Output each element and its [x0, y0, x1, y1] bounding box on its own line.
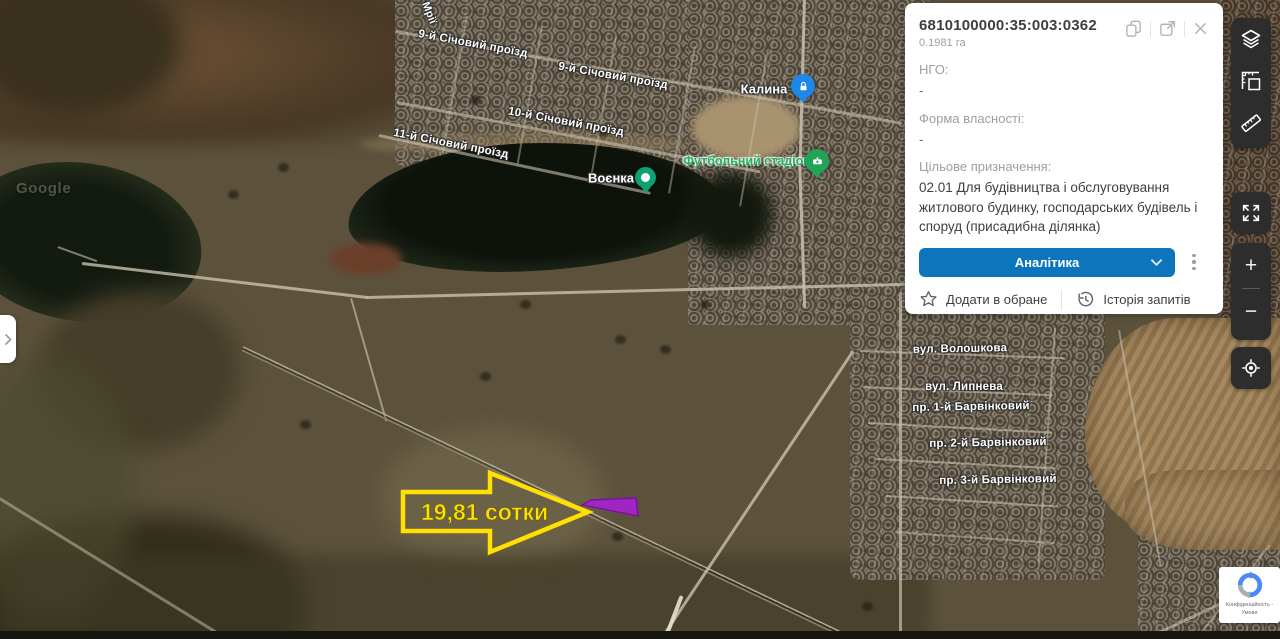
street-label: пр. 1-й Барвінковий — [912, 400, 1030, 414]
add-favorite-button[interactable]: Додати в обране — [919, 290, 1047, 309]
minus-icon: − — [1245, 301, 1257, 322]
map-terrain-zone — [0, 0, 180, 115]
map-road — [590, 36, 617, 179]
street-label: 10-й Січовий проїзд — [507, 105, 625, 138]
map-plowed-field — [1125, 470, 1280, 550]
map-road — [366, 283, 906, 299]
fullscreen-button[interactable] — [1231, 192, 1271, 234]
tree — [520, 300, 531, 309]
parcel-info-panel: 6810100000:35:003:0362 0.1981 га — [905, 3, 1223, 314]
map-road — [660, 350, 854, 639]
close-icon — [1192, 20, 1209, 37]
locate-icon — [1240, 357, 1262, 379]
tree — [660, 345, 671, 354]
map-road — [663, 595, 684, 639]
map-road — [798, 158, 806, 308]
map-road — [868, 422, 1053, 434]
area-annotation-arrow: 19,81 сотки — [395, 462, 605, 562]
map-field-zone — [330, 243, 402, 275]
recaptcha-badge[interactable]: Конфіденційність - Умови — [1219, 567, 1280, 623]
map-road — [886, 495, 1058, 507]
map-road — [668, 46, 696, 194]
history-button[interactable]: Історія запитів — [1076, 290, 1190, 309]
map-field-zone — [0, 355, 135, 620]
chevron-right-icon — [4, 333, 12, 346]
ruler-button[interactable] — [1231, 102, 1271, 144]
close-button[interactable] — [1192, 20, 1209, 37]
field-label-ownership: Форма власності: — [919, 111, 1209, 126]
map-field-zone — [40, 290, 240, 450]
street-label: пр. 3-й Барвінковий — [939, 473, 1057, 487]
poi-label-voyenka: Воєнка — [588, 171, 634, 186]
kebab-menu-button[interactable] — [1189, 251, 1199, 274]
map-road — [82, 262, 368, 299]
map-road — [895, 531, 1055, 544]
map-lake — [0, 147, 212, 337]
tree — [615, 335, 626, 344]
map-field-zone — [0, 515, 305, 639]
tree — [612, 532, 623, 541]
field-value-ownership: - — [919, 132, 1209, 147]
street-label: 9-й Січовий проїзд — [557, 60, 668, 91]
google-watermark: Google — [16, 180, 71, 197]
street-label: 9-й Січовий проїзд — [417, 28, 528, 60]
stadium-pin[interactable] — [805, 149, 829, 173]
pin-dot — [641, 173, 650, 182]
field-label-purpose: Цільове призначення: — [919, 159, 1209, 174]
open-in-new-button[interactable] — [1158, 19, 1177, 38]
tree — [862, 602, 873, 611]
poi-label-kalyna: Калина — [741, 82, 788, 97]
chevron-down-icon — [1150, 258, 1163, 267]
map-village-zone — [850, 285, 1105, 580]
street-label: 11-й Січовий проїзд — [392, 127, 509, 161]
tree — [300, 420, 311, 429]
parcel-area: 0.1981 га — [919, 37, 1097, 49]
tree — [480, 372, 491, 381]
expand-panel-tab[interactable] — [0, 315, 16, 363]
street-label: Мрії — [419, 0, 439, 26]
street-label: вул. Волошкова — [913, 342, 1007, 356]
street-label: вул. Липнева — [925, 381, 1003, 393]
divider — [1061, 290, 1062, 310]
zoom-in-button[interactable]: + — [1231, 243, 1271, 288]
street-label: пр. 2-й Барвінковий — [929, 436, 1047, 450]
add-favorite-label: Додати в обране — [946, 292, 1047, 307]
map-lake — [688, 172, 773, 257]
history-clock-icon — [1076, 290, 1095, 309]
tree — [470, 95, 481, 104]
star-icon — [919, 290, 938, 309]
tree — [228, 190, 239, 199]
map-lake — [346, 136, 725, 277]
locate-button[interactable] — [1231, 347, 1271, 389]
map-road — [0, 497, 231, 639]
map-road — [739, 54, 768, 207]
layers-button[interactable] — [1231, 18, 1271, 60]
poi-label-stadion: Футбольний стадіон — [683, 154, 811, 168]
lock-icon — [797, 80, 810, 93]
analytics-button-label: Аналітика — [1015, 255, 1079, 270]
tree — [700, 300, 711, 309]
field-value-purpose: 02.01 Для будівництва і обслуговування ж… — [919, 178, 1209, 237]
area-annotation-text: 19,81 сотки — [421, 499, 548, 525]
map-canvas[interactable]: Google Мрії 9-й Січовий проїзд 9-й Січов… — [0, 0, 1280, 639]
ruler-icon — [1239, 111, 1263, 135]
map-field-zone — [0, 555, 930, 639]
dot-pin-voyenka[interactable] — [635, 167, 656, 188]
measure-area-button[interactable] — [1231, 60, 1271, 102]
field-value-ngo: - — [919, 83, 1209, 98]
divider — [1184, 21, 1185, 37]
map-road — [899, 292, 902, 632]
recaptcha-logo-icon — [1236, 571, 1264, 599]
recaptcha-terms: Конфіденційність - Умови — [1224, 601, 1276, 618]
layers-icon — [1239, 27, 1263, 51]
plus-icon: + — [1245, 255, 1257, 276]
field-label-ngo: НГО: — [919, 62, 1209, 77]
cadastral-number: 6810100000:35:003:0362 — [919, 17, 1097, 34]
map-road — [1118, 330, 1162, 567]
divider — [1150, 21, 1151, 37]
stadium-icon — [811, 155, 824, 168]
map-field-zone — [692, 96, 800, 160]
map-road — [876, 458, 1056, 469]
history-label: Історія запитів — [1103, 292, 1190, 307]
lock-pin-kalyna[interactable] — [791, 74, 815, 98]
map-road — [350, 298, 387, 422]
measure-area-icon — [1239, 69, 1263, 93]
fullscreen-icon — [1240, 202, 1262, 224]
tree — [278, 163, 289, 172]
analytics-button[interactable]: Аналітика — [919, 248, 1175, 277]
copy-button[interactable] — [1124, 19, 1143, 38]
map-terrain-zone — [0, 0, 450, 145]
zoom-out-button[interactable]: − — [1231, 289, 1271, 334]
open-in-new-icon — [1158, 19, 1177, 38]
bottom-edge-strip — [0, 631, 1280, 639]
copy-icon — [1124, 19, 1143, 38]
map-road — [57, 246, 97, 262]
